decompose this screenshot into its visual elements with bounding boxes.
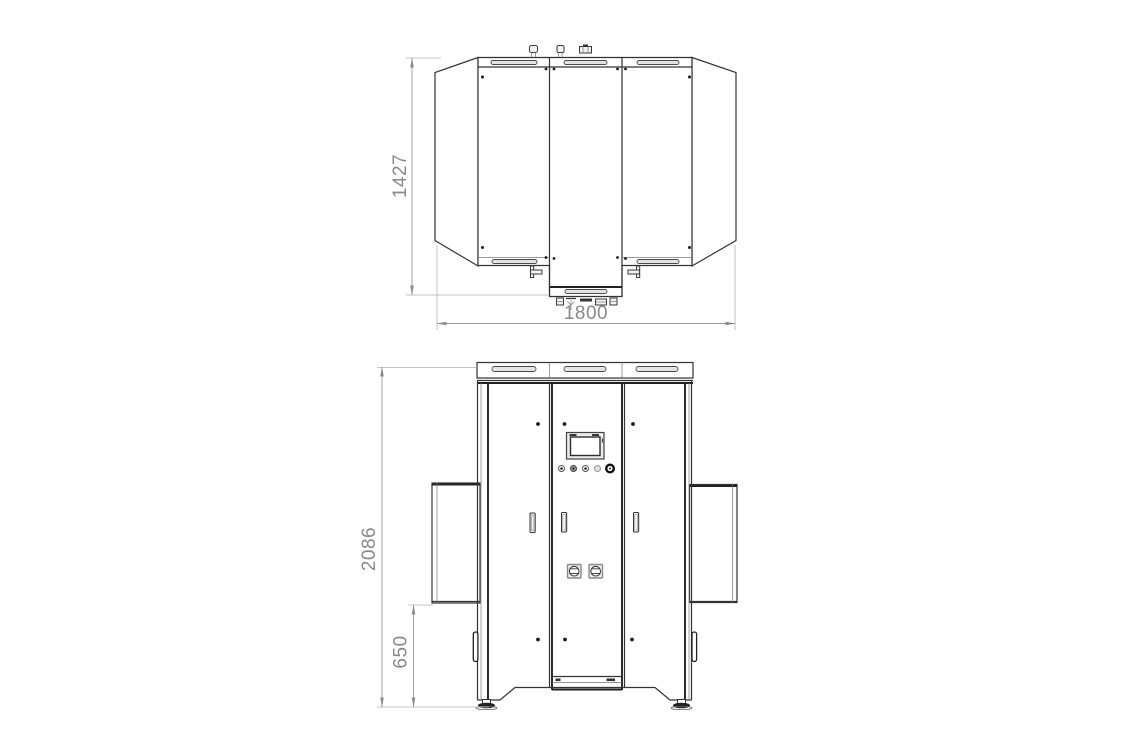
control-buttons — [559, 465, 614, 473]
hmi-screen — [571, 437, 601, 456]
button-4 — [595, 466, 601, 472]
leveling-feet — [476, 700, 692, 710]
hmi-display — [567, 433, 605, 460]
top-view: 1427 1800 — [390, 45, 736, 331]
top-view-right-wing — [692, 58, 736, 267]
button-3 — [583, 466, 589, 472]
left-foot — [476, 700, 497, 710]
center-door-handle — [562, 513, 567, 533]
front-view: 2086 650 — [359, 363, 737, 710]
top-view-top-fittings — [530, 45, 592, 58]
front-door-dividers — [550, 383, 625, 690]
top-view-left-wing — [435, 58, 478, 267]
side-brackets — [473, 632, 696, 662]
front-right-wing — [690, 485, 738, 603]
front-left-wing — [432, 483, 480, 603]
dimension-drawing: 1427 1800 — [0, 0, 1140, 750]
button-2 — [571, 466, 577, 472]
dimension-front-base-height: 650 — [391, 605, 434, 708]
dim-label-1427: 1427 — [390, 154, 411, 198]
right-door-handle — [634, 513, 639, 533]
emergency-stop-button — [606, 465, 614, 473]
socket-1 — [568, 565, 582, 579]
front-top-cap — [477, 363, 693, 384]
top-view-top-vent-slots — [491, 61, 679, 65]
front-cabinet-frame — [478, 381, 692, 701]
left-door-handle — [530, 513, 535, 533]
dim-label-650: 650 — [391, 635, 412, 668]
front-sockets — [568, 565, 603, 579]
button-1 — [559, 466, 565, 472]
drawing-sheet: 1427 1800 — [0, 0, 1140, 750]
dim-label-1800: 1800 — [564, 303, 608, 324]
right-foot — [671, 700, 692, 710]
dim-label-2086: 2086 — [359, 527, 380, 571]
socket-2 — [589, 565, 603, 579]
